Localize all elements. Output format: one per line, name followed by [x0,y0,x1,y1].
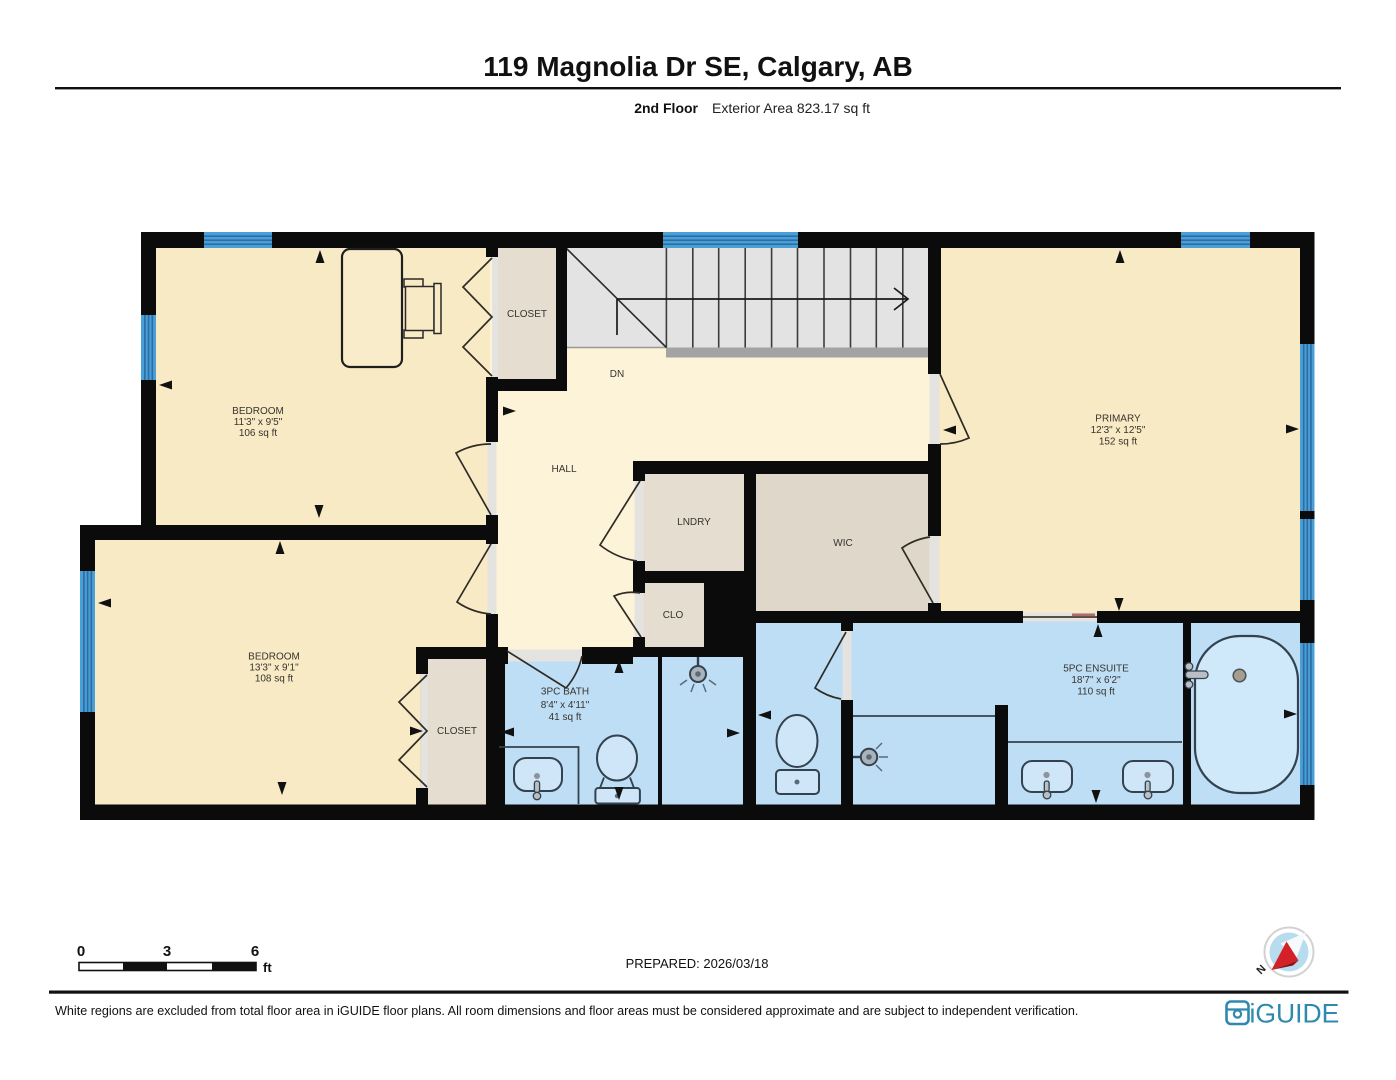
svg-text:CLO: CLO [663,610,684,621]
svg-text:iGUIDE: iGUIDE [1250,999,1340,1029]
svg-text:2nd Floor: 2nd Floor [634,100,698,116]
svg-text:Exterior Area 823.17 sq ft: Exterior Area 823.17 sq ft [712,100,870,116]
svg-text:108 sq ft: 108 sq ft [255,674,294,685]
svg-text:13'3" x 9'1": 13'3" x 9'1" [249,663,299,674]
svg-text:WIC: WIC [833,538,852,549]
svg-text:3PC BATH: 3PC BATH [541,687,589,698]
svg-text:8'4" x 4'11": 8'4" x 4'11" [541,700,590,711]
svg-text:BEDROOM: BEDROOM [232,406,284,417]
svg-text:DN: DN [610,369,624,380]
svg-text:White regions are excluded fro: White regions are excluded from total fl… [55,1004,1078,1018]
svg-text:HALL: HALL [551,464,576,475]
svg-text:CLOSET: CLOSET [437,726,477,737]
svg-text:LNDRY: LNDRY [677,517,711,528]
svg-text:106 sq ft: 106 sq ft [239,428,278,439]
svg-text:ft: ft [263,960,272,975]
svg-text:12'3" x 12'5": 12'3" x 12'5" [1091,425,1146,436]
svg-text:0: 0 [77,943,85,960]
svg-text:BEDROOM: BEDROOM [248,652,300,663]
svg-text:6: 6 [251,943,259,960]
svg-text:3: 3 [163,943,171,960]
svg-text:PREPARED: 2026/03/18: PREPARED: 2026/03/18 [626,956,769,971]
svg-text:11'3" x 9'5": 11'3" x 9'5" [234,417,283,428]
svg-text:18'7" x 6'2": 18'7" x 6'2" [1071,675,1121,686]
svg-text:110 sq ft: 110 sq ft [1077,687,1115,698]
svg-text:CLOSET: CLOSET [507,309,547,320]
svg-text:PRIMARY: PRIMARY [1095,414,1141,425]
svg-text:5PC ENSUITE: 5PC ENSUITE [1063,664,1129,675]
svg-text:119 Magnolia Dr SE, Calgary, A: 119 Magnolia Dr SE, Calgary, AB [483,51,912,82]
svg-text:41 sq ft: 41 sq ft [549,712,582,723]
svg-text:152 sq ft: 152 sq ft [1099,437,1138,448]
